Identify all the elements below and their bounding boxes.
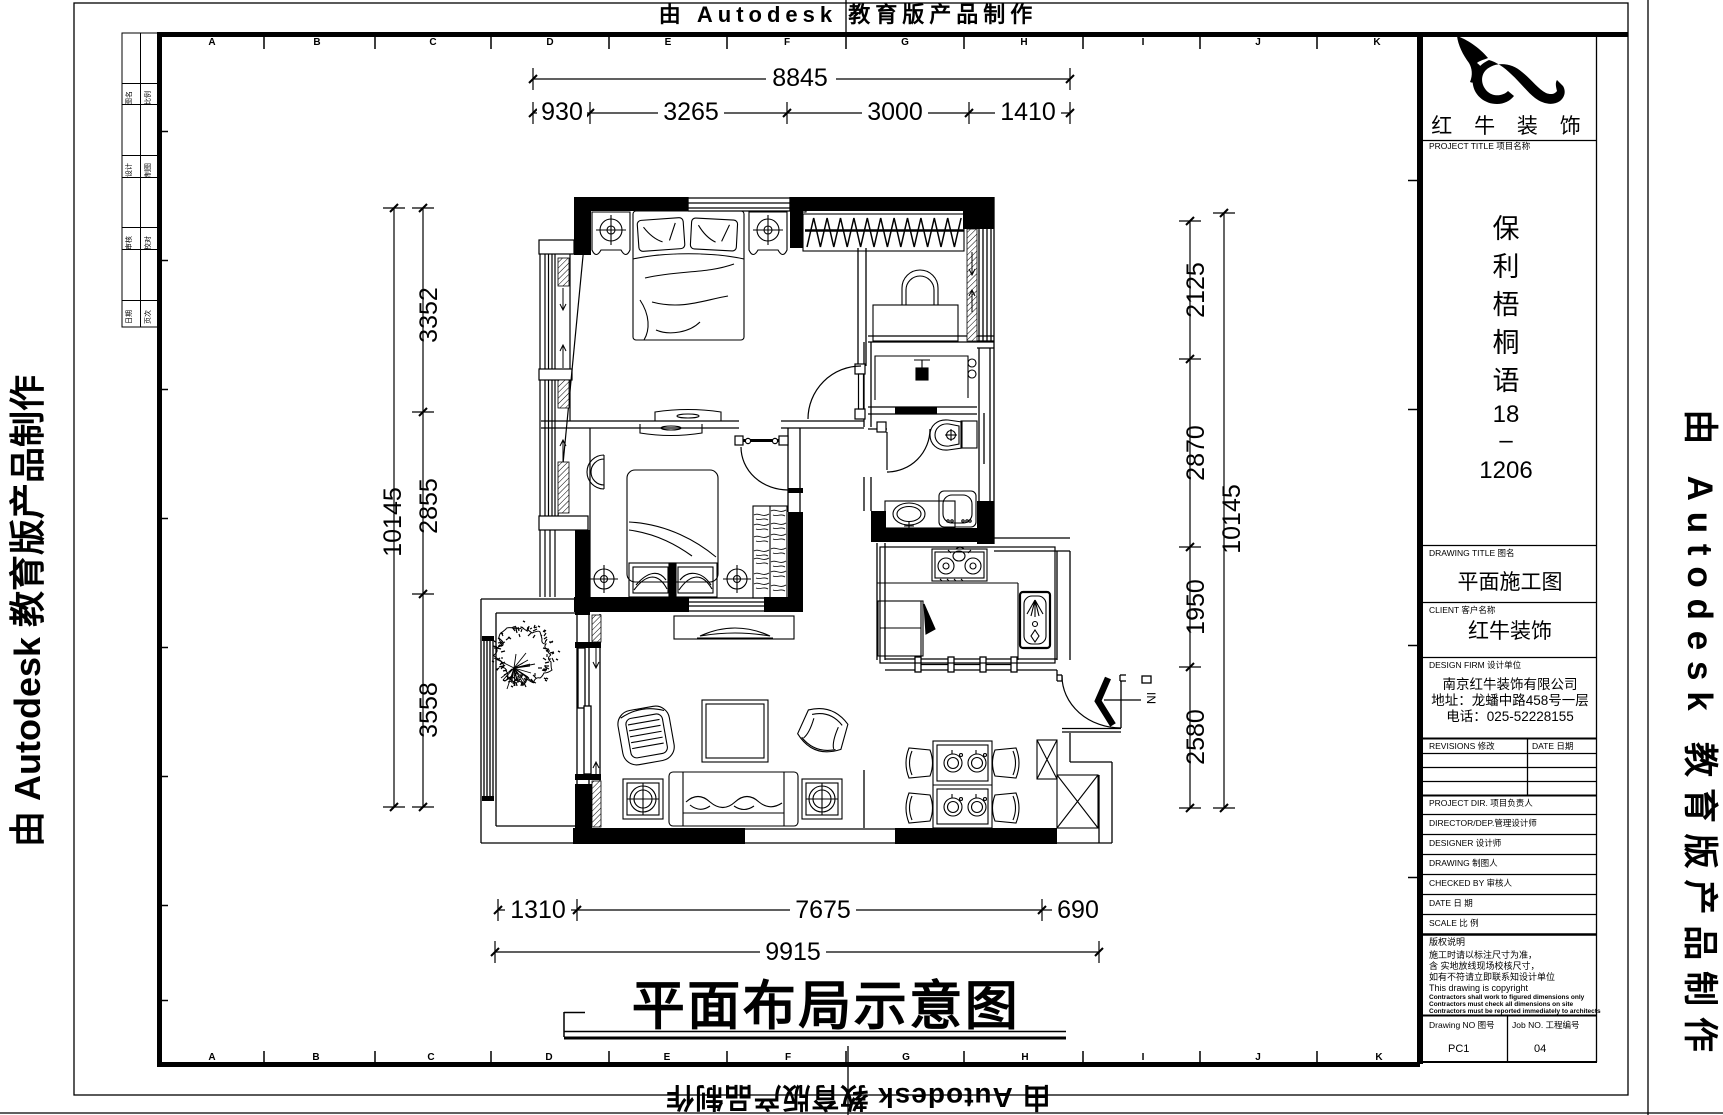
svg-text:04: 04	[1534, 1043, 1546, 1055]
svg-text:C: C	[429, 37, 436, 48]
svg-text:红 牛 装 饰: 红 牛 装 饰	[1431, 115, 1589, 138]
svg-text:页次: 页次	[143, 310, 152, 324]
svg-text:由 Autodesk 教育版产品制作: 由 Autodesk 教育版产品制作	[7, 375, 48, 847]
svg-text:REVISIONS 修改: REVISIONS 修改	[1429, 741, 1495, 751]
svg-text:利: 利	[1493, 252, 1520, 282]
svg-text:图名: 图名	[124, 91, 133, 105]
svg-text:3352: 3352	[415, 287, 443, 343]
svg-text:如有不符请立即联系知设计单位: 如有不符请立即联系知设计单位	[1429, 971, 1555, 982]
svg-text:Drawing NO 图号: Drawing NO 图号	[1429, 1020, 1495, 1030]
svg-text:10145: 10145	[379, 487, 407, 557]
svg-text:Contractors must check all dim: Contractors must check all dimensions on…	[1429, 1001, 1574, 1008]
svg-text:A: A	[208, 37, 215, 48]
svg-text:制图: 制图	[143, 163, 152, 177]
svg-text:2580: 2580	[1182, 709, 1210, 765]
svg-text:E: E	[664, 1052, 671, 1063]
svg-text:语: 语	[1493, 366, 1520, 396]
svg-text:DATE 日期: DATE 日期	[1532, 741, 1573, 751]
svg-text:3000: 3000	[867, 98, 923, 126]
svg-text:10145: 10145	[1218, 484, 1246, 554]
svg-text:由 Autodesk 教育版产品制作: 由 Autodesk 教育版产品制作	[659, 2, 1037, 27]
svg-text:I: I	[1142, 1052, 1145, 1063]
svg-text:平面布局示意图: 平面布局示意图	[632, 977, 1021, 1036]
svg-text:PC1: PC1	[1448, 1043, 1469, 1055]
svg-text:C: C	[427, 1052, 434, 1063]
svg-text:D: D	[545, 1052, 552, 1063]
svg-text:F: F	[784, 37, 790, 48]
svg-text:DATE 日 期: DATE 日 期	[1429, 898, 1473, 908]
svg-text:审核: 审核	[124, 236, 133, 250]
svg-text:2870: 2870	[1182, 425, 1210, 481]
svg-text:由 Autodesk 教育版产品制作: 由 Autodesk 教育版产品制作	[665, 1082, 1050, 1114]
svg-text:保: 保	[1493, 214, 1520, 244]
svg-text:CHECKED BY 审核人: CHECKED BY 审核人	[1429, 878, 1512, 888]
svg-text:红牛装饰: 红牛装饰	[1468, 620, 1552, 643]
svg-text:18: 18	[1493, 401, 1520, 428]
svg-text:平面施工图: 平面施工图	[1458, 571, 1563, 594]
svg-text:施工时请以标注尺寸为准，: 施工时请以标注尺寸为准，	[1429, 949, 1537, 960]
svg-text:H: H	[1021, 1052, 1028, 1063]
svg-text:G: G	[902, 1052, 910, 1063]
svg-text:由 Autodesk 教育版产品制作: 由 Autodesk 教育版产品制作	[1680, 409, 1719, 1062]
svg-text:–: –	[1499, 427, 1513, 454]
svg-text:CLIENT 客户名称: CLIENT 客户名称	[1429, 605, 1496, 615]
svg-text:G: G	[901, 37, 909, 48]
svg-text:DRAWING TITLE 图名: DRAWING TITLE 图名	[1429, 548, 1514, 558]
svg-text:IN: IN	[1144, 692, 1158, 704]
svg-text:H: H	[1020, 37, 1027, 48]
svg-text:桐: 桐	[1493, 328, 1520, 358]
svg-text:DESIGN FIRM 设计单位: DESIGN FIRM 设计单位	[1429, 660, 1522, 670]
svg-text:K: K	[1375, 1052, 1383, 1063]
svg-text:电话：025-52228155: 电话：025-52228155	[1446, 709, 1574, 724]
svg-text:8845: 8845	[772, 64, 828, 92]
svg-text:D: D	[546, 37, 553, 48]
svg-text:F: F	[785, 1052, 791, 1063]
svg-text:比例: 比例	[143, 91, 152, 105]
svg-text:E: E	[665, 37, 672, 48]
svg-text:1310: 1310	[510, 896, 566, 924]
svg-text:A: A	[208, 1052, 215, 1063]
svg-text:DESIGNER 设计师: DESIGNER 设计师	[1429, 838, 1502, 848]
svg-text:DIRECTOR/DEP.管理设计师: DIRECTOR/DEP.管理设计师	[1429, 818, 1537, 828]
svg-text:日期: 日期	[125, 310, 133, 324]
svg-text:B: B	[313, 37, 320, 48]
svg-text:1410: 1410	[1000, 98, 1056, 126]
svg-text:校对: 校对	[143, 236, 152, 250]
svg-text:PROJECT DIR. 项目负责人: PROJECT DIR. 项目负责人	[1429, 798, 1533, 808]
svg-text:690: 690	[1057, 896, 1099, 924]
svg-text:J: J	[1255, 37, 1261, 48]
svg-text:Contractors must be reported i: Contractors must be reported immediately…	[1429, 1008, 1601, 1015]
svg-text:K: K	[1373, 37, 1381, 48]
svg-text:This drawing is copyright: This drawing is copyright	[1429, 983, 1529, 993]
svg-text:I: I	[1142, 37, 1145, 48]
svg-text:J: J	[1255, 1052, 1261, 1063]
svg-text:SCALE 比 例: SCALE 比 例	[1429, 918, 1479, 928]
svg-text:2855: 2855	[415, 478, 443, 534]
svg-text:Job NO. 工程编号: Job NO. 工程编号	[1512, 1020, 1580, 1030]
svg-text:B: B	[312, 1052, 319, 1063]
svg-text:PROJECT TITLE 项目名称: PROJECT TITLE 项目名称	[1429, 141, 1531, 151]
svg-text:地址：龙蟠中路458号一层: 地址：龙蟠中路458号一层	[1431, 693, 1589, 708]
svg-text:南京红牛装饰有限公司: 南京红牛装饰有限公司	[1443, 677, 1578, 692]
svg-text:2125: 2125	[1182, 262, 1210, 318]
svg-text:3558: 3558	[415, 682, 443, 738]
svg-text:梧: 梧	[1493, 290, 1520, 320]
svg-text:Contractors shall work to figu: Contractors shall work to figured dimens…	[1429, 994, 1585, 1001]
svg-text:1950: 1950	[1182, 579, 1210, 635]
svg-text:3265: 3265	[663, 98, 719, 126]
svg-text:含 实地放线现场校核尺寸，: 含 实地放线现场校核尺寸，	[1429, 960, 1540, 971]
svg-text:9915: 9915	[765, 938, 821, 966]
svg-text:DRAWING 制图人: DRAWING 制图人	[1429, 858, 1498, 868]
svg-text:1206: 1206	[1479, 457, 1532, 484]
svg-text:设计: 设计	[124, 163, 133, 177]
svg-text:版权说明: 版权说明	[1429, 936, 1465, 947]
svg-text:930: 930	[541, 98, 583, 126]
svg-text:7675: 7675	[795, 896, 851, 924]
